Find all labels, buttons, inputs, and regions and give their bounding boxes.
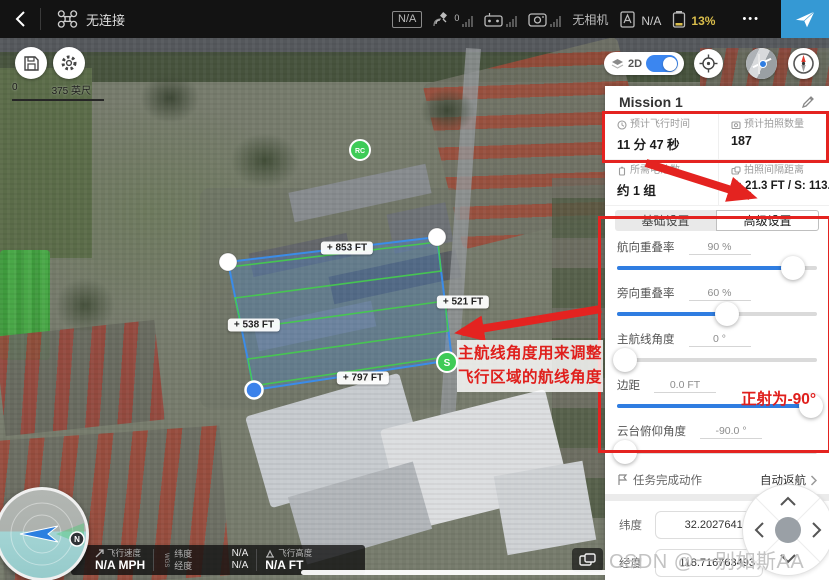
top-status-bar: 无连接 N/A 0 <box>0 0 829 38</box>
rc-location-marker: RC <box>350 140 370 160</box>
camera-status-text: 无相机 <box>572 11 608 28</box>
rc-status <box>484 12 517 27</box>
slider-label: 旁向重叠率 <box>617 285 675 301</box>
map-mode-label: 2D <box>628 58 642 70</box>
altitude-label: 飞行高度 <box>278 548 312 558</box>
slider-label: 航向重叠率 <box>617 239 675 255</box>
slider-value[interactable]: 0.0 FT <box>654 379 716 393</box>
map-2d-toggle[interactable] <box>646 55 678 72</box>
clock-icon <box>617 120 627 130</box>
north-indicator: N <box>70 532 84 546</box>
stat-label: 拍照间隔距离 <box>744 165 804 177</box>
dpad-down-chevron[interactable] <box>781 555 795 562</box>
map-view-switch-button[interactable] <box>572 548 603 572</box>
rc-signal-bars <box>506 16 517 27</box>
minimap-thumbnail <box>746 48 777 79</box>
mission-settings-panel: Mission 1 预计飞行时间 11 分 47 秒 预计拍照数量 187 <box>605 86 829 580</box>
back-chevron-icon <box>15 10 26 28</box>
signal-na-badge: N/A <box>392 11 422 28</box>
save-icon <box>23 55 40 72</box>
svg-text:RC: RC <box>355 148 365 155</box>
speed-label: 飞行速度 <box>107 548 141 558</box>
altitude-icon <box>265 549 275 558</box>
edge-length-label-top: + 853 FT <box>321 242 373 255</box>
stat-value: F: 21.3 FT / S: 113.6 FT <box>731 180 829 192</box>
dpad-center-knob[interactable] <box>775 517 801 543</box>
front-overlap-slider-row: 航向重叠率 90 % <box>617 238 817 279</box>
lng-label: 经度 <box>174 560 192 572</box>
lat-value: N/A <box>232 548 249 560</box>
finish-action-icon <box>617 474 628 486</box>
slider-track[interactable] <box>617 450 817 454</box>
mission-settings-button[interactable] <box>53 47 85 79</box>
nudge-dpad[interactable] <box>742 484 829 576</box>
speed-icon <box>95 549 104 558</box>
mission-title: Mission 1 <box>619 94 683 110</box>
dpad-left-chevron[interactable] <box>756 523 763 537</box>
slider-label: 主航线角度 <box>617 331 675 347</box>
map-scale: 0 375 英尺 <box>12 82 104 101</box>
scale-end-label: 375 英尺 <box>52 82 91 97</box>
edge-length-label-left: + 538 FT <box>228 319 280 332</box>
slider-handle[interactable] <box>799 394 823 418</box>
attitude-indicator: N <box>0 487 89 580</box>
dpad-up-chevron[interactable] <box>781 498 795 505</box>
more-menu-button[interactable]: ••• <box>742 13 760 25</box>
slider-handle[interactable] <box>781 256 805 280</box>
camera-status-group <box>528 12 561 27</box>
battery-count-icon <box>617 166 627 176</box>
layers-icon <box>611 58 624 70</box>
locate-me-button[interactable] <box>694 49 723 78</box>
advanced-settings-sliders: 航向重叠率 90 % 旁向重叠率 60 % 主航线角度 0 ° <box>605 231 829 463</box>
edge-length-label-bottom: + 797 FT <box>337 372 389 385</box>
slider-track[interactable] <box>617 358 817 362</box>
finish-action-label: 任务完成动作 <box>633 472 702 488</box>
camera-signal-bars <box>550 16 561 27</box>
stat-label: 预计拍照数量 <box>744 119 804 131</box>
stat-label: 所需电池数 <box>630 165 680 177</box>
edge-length-label-right: + 521 FT <box>437 296 489 309</box>
compass-icon <box>792 52 815 75</box>
stat-value: 11 分 47 秒 <box>617 134 714 153</box>
flight-mode-group: N/A <box>619 11 661 28</box>
photo-count-icon <box>731 120 741 130</box>
slider-value[interactable]: 90 % <box>689 241 751 255</box>
chevron-right-icon <box>810 475 817 486</box>
picture-in-picture-icon <box>579 553 596 567</box>
tab-basic-settings[interactable]: 基础设置 <box>615 210 716 231</box>
camera-icon <box>528 12 547 27</box>
slider-handle[interactable] <box>613 348 637 372</box>
slider-label: 边距 <box>617 377 640 393</box>
slider-handle[interactable] <box>613 440 637 464</box>
slider-handle[interactable] <box>715 302 739 326</box>
connection-status: 无连接 <box>86 10 125 29</box>
tab-advanced-settings[interactable]: 高级设置 <box>716 210 819 231</box>
stat-value: 187 <box>731 134 829 148</box>
battery-percent: 13% <box>691 14 715 28</box>
slider-value[interactable]: 0 ° <box>689 333 751 347</box>
gps-signal-bars <box>462 16 473 27</box>
speed-value: N/A MPH <box>95 559 145 572</box>
app-screen: 无连接 N/A 0 <box>0 0 829 580</box>
photo-interval-icon <box>731 166 741 176</box>
minimap-toggle-button[interactable] <box>746 48 777 79</box>
gimbal-pitch-slider-row: 云台俯仰角度 -90.0 ° <box>617 422 817 463</box>
datum-label: WGS <box>162 553 169 567</box>
lat-label: 纬度 <box>174 548 192 560</box>
margin-slider-row: 边距 0.0 FT <box>617 376 817 417</box>
svg-text:N: N <box>74 535 80 544</box>
stat-label: 预计飞行时间 <box>630 119 690 131</box>
takeoff-button[interactable] <box>781 0 829 38</box>
gps-status: 0 <box>433 11 473 27</box>
crosshair-icon <box>699 54 718 73</box>
mission-stats: 预计飞行时间 11 分 47 秒 预计拍照数量 187 所需电池数 约 1 组 <box>605 114 829 206</box>
side-overlap-slider-row: 旁向重叠率 60 % <box>617 284 817 325</box>
flight-mode-value: N/A <box>641 14 661 28</box>
satellite-icon <box>433 11 451 27</box>
aircraft-heading-arrow <box>20 526 58 542</box>
battery-icon <box>672 10 686 28</box>
latitude-label: 纬度 <box>619 517 647 533</box>
home-indicator[interactable] <box>301 570 618 575</box>
divider <box>40 8 41 30</box>
aircraft-icon <box>57 9 78 29</box>
edit-mission-name-icon[interactable] <box>801 95 815 109</box>
settings-tabs: 基础设置 高级设置 <box>615 210 819 231</box>
save-mission-button[interactable] <box>15 47 47 79</box>
remote-controller-icon <box>484 12 503 27</box>
back-button[interactable] <box>0 0 40 38</box>
map-mode-control: 2D <box>604 52 684 75</box>
stat-value: 约 1 组 <box>617 180 714 199</box>
lng-value: N/A <box>232 560 249 572</box>
longitude-label: 经度 <box>619 555 647 571</box>
scale-bar <box>12 99 104 101</box>
takeoff-plane-icon <box>793 7 817 31</box>
slider-label: 云台俯仰角度 <box>617 423 686 439</box>
slider-value[interactable]: 60 % <box>689 287 751 301</box>
scale-start-label: 0 <box>12 82 18 97</box>
dpad-right-chevron[interactable] <box>813 523 820 537</box>
compass-reset-button[interactable] <box>788 48 819 79</box>
flight-mode-icon <box>619 11 636 28</box>
satellite-count: 0 <box>454 13 459 23</box>
battery-group: 13% <box>672 10 715 28</box>
gear-icon <box>60 54 78 72</box>
route-angle-slider-row: 主航线角度 0 ° <box>617 330 817 371</box>
slider-value[interactable]: -90.0 ° <box>700 425 762 439</box>
